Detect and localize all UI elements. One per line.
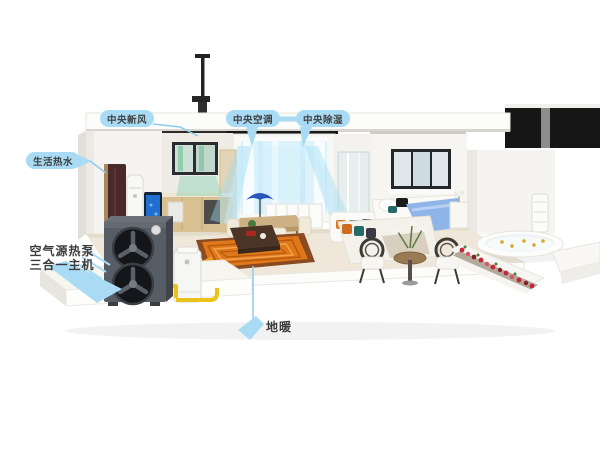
heat-pump-label-line2: 三合一主机 bbox=[10, 259, 114, 273]
water-tank-outdoor bbox=[174, 247, 201, 302]
callout-central-ac: 中央空调 bbox=[226, 110, 280, 127]
callout-fresh-air: 中央新风 bbox=[100, 110, 154, 127]
towel-radiator bbox=[532, 194, 548, 232]
callout-hot-water: 生活热水 bbox=[26, 152, 80, 169]
house-cutaway-scene bbox=[0, 0, 600, 450]
kitchen-window bbox=[172, 142, 218, 175]
ground-shadow bbox=[65, 322, 555, 340]
dark-roof-right bbox=[505, 104, 600, 148]
brand-logo-badge bbox=[152, 226, 161, 235]
callout-dehumidify: 中央除湿 bbox=[296, 110, 350, 127]
callout-floor-heating: 地暖 bbox=[266, 321, 292, 335]
heat-pump-home-cutaway-illustration: 中央新风 中央空调 中央除湿 生活热水 空气源热泵 三合一主机 地暖 bbox=[0, 0, 600, 450]
callout-heat-pump: 空气源热泵 三合一主机 bbox=[10, 245, 114, 272]
fan-top bbox=[113, 228, 153, 268]
heat-pump-label-line1: 空气源热泵 bbox=[10, 245, 114, 259]
fan-bottom bbox=[113, 264, 153, 304]
bedroom-window bbox=[388, 149, 454, 194]
